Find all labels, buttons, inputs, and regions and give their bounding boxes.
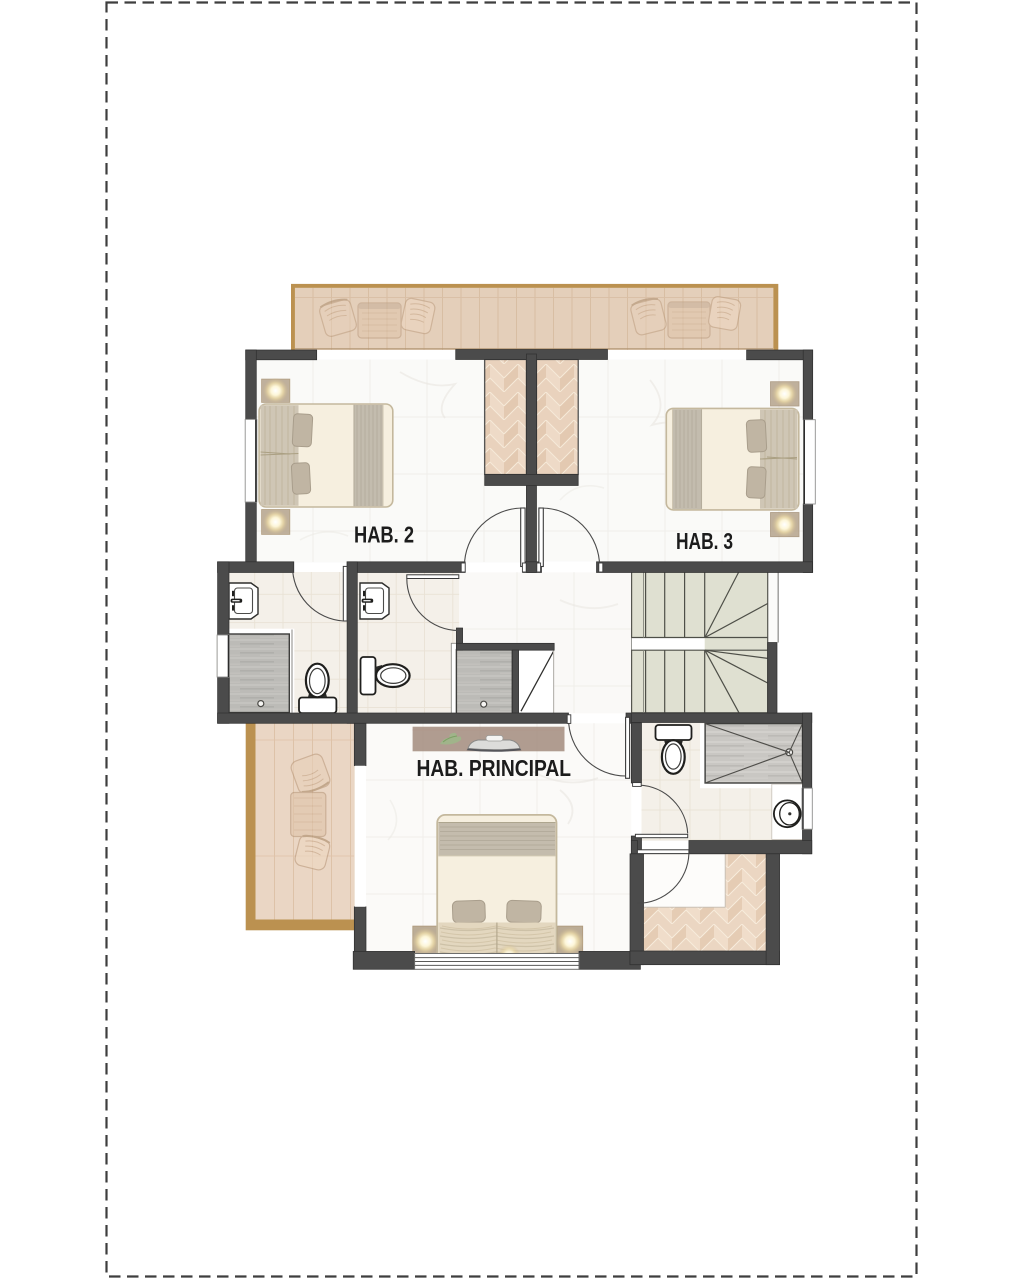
svg-text:HAB. 3: HAB. 3: [676, 528, 733, 554]
svg-text:HAB. 2: HAB. 2: [354, 521, 414, 547]
svg-text:HAB. PRINCIPAL: HAB. PRINCIPAL: [417, 755, 572, 781]
